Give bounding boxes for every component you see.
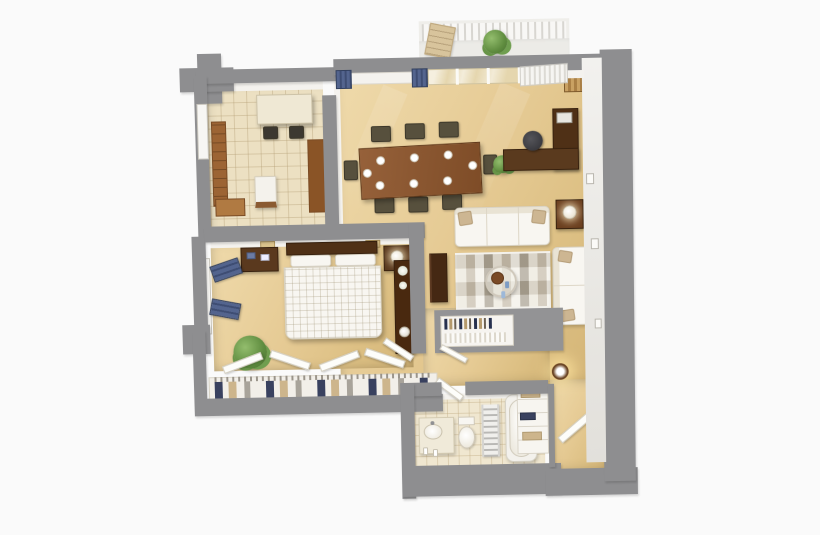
bed-pillow [335,254,376,267]
nightstand-left [240,247,278,272]
nightstand-books [246,252,255,259]
place-setting [363,169,372,178]
bed-duvet-checked [284,265,383,339]
kitchen-north-wall [195,67,337,84]
place-setting [468,161,477,170]
dining-chair [344,160,358,180]
dining-chair [374,197,394,213]
decor-bottle [505,281,509,288]
kitchen-window-west [196,104,209,160]
north-wall-face-end [568,70,584,78]
wall-picture-frame [591,238,599,249]
dining-chair [408,196,428,212]
dining-curtain-left [336,70,352,89]
dining-curtain-right [412,68,428,87]
place-setting [410,153,419,162]
bathroom-north-wall-east [465,380,548,395]
dining-table [358,142,482,200]
bath-bottle [423,447,428,455]
wall-picture-frame [586,173,594,184]
bathroom-south-wall [402,463,562,497]
nightstand-paper [260,254,269,261]
floor-plan-scene [0,0,820,535]
sliding-door-frames [428,67,520,85]
decor-bottle [501,291,505,298]
bookshelf-white-spines-row [445,332,506,343]
wall-picture-frame [595,319,602,329]
kitchen-cabinet-lower [215,198,245,216]
kitchen-chair [263,126,278,139]
place-setting [443,176,452,185]
west-wall-mid [191,237,208,335]
dining-chair [371,126,391,142]
toilet-tank [458,416,475,425]
dining-chair [439,121,459,137]
sofa-pillow [531,209,547,224]
linen-east-wall [548,384,555,467]
tv-console [429,253,448,302]
bed-pillow [290,255,331,268]
apartment-plan [0,0,820,533]
kitchen-island [254,176,277,208]
place-setting [409,179,418,188]
desk-return-section [503,148,579,171]
bookshelf-books-row [444,318,494,330]
place-setting [376,156,385,165]
kitchen-chair [289,126,304,139]
linen-towels-tan [522,431,542,440]
place-setting [375,181,384,190]
sofa-pillow [457,210,473,226]
loveseat-pillow [557,250,573,264]
dining-chair [405,123,425,139]
towel-radiator [481,404,500,457]
vertical-blinds [520,63,568,86]
desk-monitor [556,112,572,123]
place-setting [443,150,452,159]
linen-towels-navy [520,412,536,420]
bedroom-east-wall [409,222,426,353]
bath-bottle [433,449,438,457]
kitchen-cabinets-left [211,121,228,206]
kitchen-table [256,94,313,125]
